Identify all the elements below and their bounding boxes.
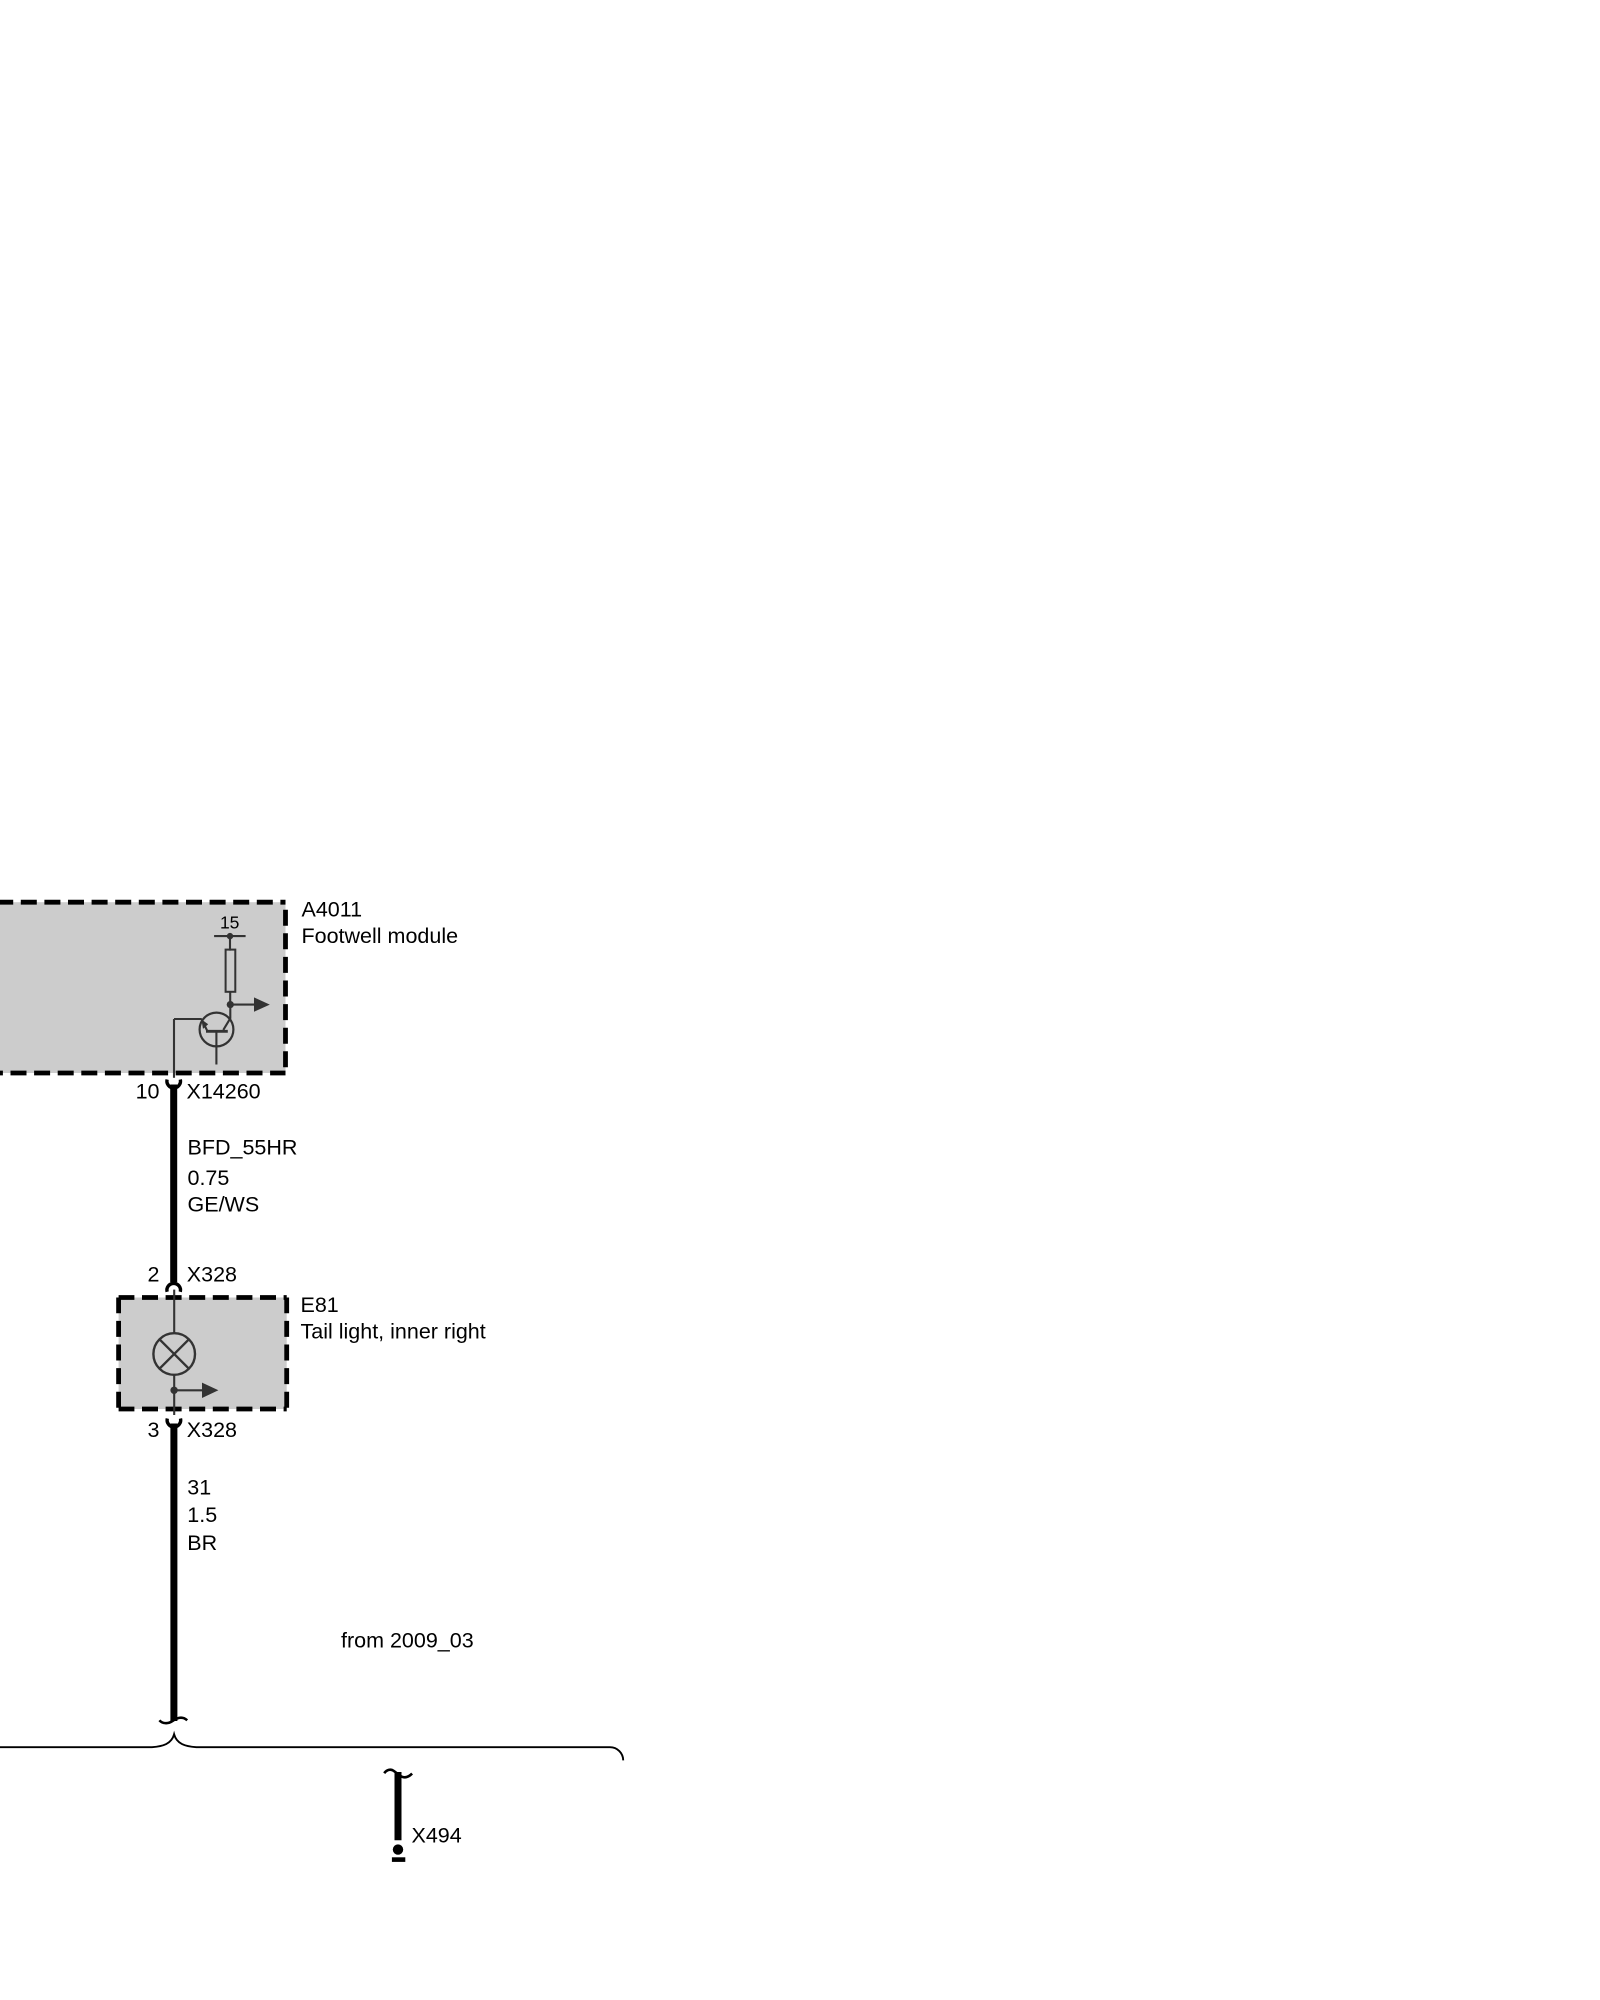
svg-text:X494: X494 — [412, 1823, 462, 1847]
svg-text:BR: BR — [187, 1531, 217, 1555]
svg-text:15: 15 — [220, 913, 239, 933]
svg-text:2: 2 — [148, 1263, 160, 1287]
svg-text:0.75: 0.75 — [188, 1166, 230, 1190]
svg-text:31: 31 — [187, 1475, 211, 1499]
svg-text:A4011: A4011 — [302, 898, 363, 922]
svg-text:X328: X328 — [187, 1418, 237, 1442]
svg-text:Tail light, inner right: Tail light, inner right — [301, 1319, 486, 1343]
svg-text:BFD_55HR: BFD_55HR — [188, 1135, 298, 1159]
svg-text:from 2009_03: from 2009_03 — [341, 1628, 474, 1652]
svg-text:GE/WS: GE/WS — [188, 1192, 260, 1216]
svg-text:E81: E81 — [301, 1293, 339, 1317]
svg-text:3: 3 — [148, 1418, 160, 1442]
svg-text:10: 10 — [136, 1080, 160, 1104]
svg-text:Footwell module: Footwell module — [302, 924, 459, 948]
svg-text:1.5: 1.5 — [187, 1503, 217, 1527]
svg-text:X328: X328 — [187, 1263, 237, 1287]
svg-text:X14260: X14260 — [187, 1080, 261, 1104]
